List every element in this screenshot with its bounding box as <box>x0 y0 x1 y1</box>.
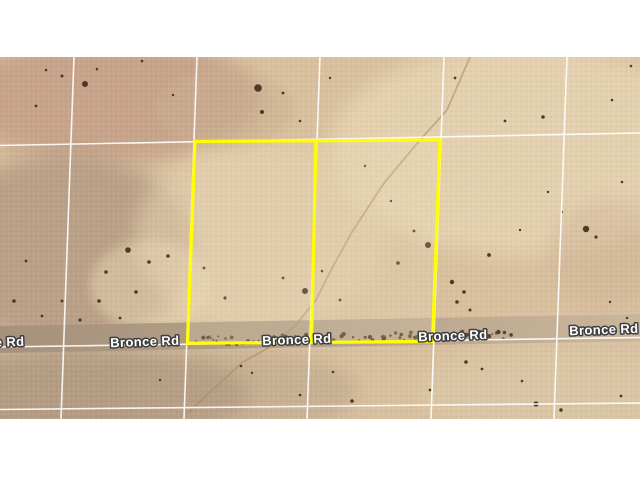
road-label-bronce-rd-2: Bronce Rd <box>110 333 180 350</box>
road-label-bronce-rd-4: Bronce Rd <box>418 327 488 344</box>
map-viewport[interactable]: Bronce Rd Bronce Rd Bronce Rd Bronce Rd … <box>0 0 640 480</box>
road-label-bronce-rd-5: Bronce Rd <box>569 321 639 338</box>
terrain-imagery: Bronce Rd Bronce Rd Bronce Rd Bronce Rd … <box>0 38 640 443</box>
satellite-map-image: Bronce Rd Bronce Rd Bronce Rd Bronce Rd … <box>0 0 640 480</box>
parcel-boundary <box>188 140 441 343</box>
road-label-bronce-rd-1: Bronce Rd <box>0 334 25 351</box>
road-label-bronce-rd-3: Bronce Rd <box>262 331 332 348</box>
